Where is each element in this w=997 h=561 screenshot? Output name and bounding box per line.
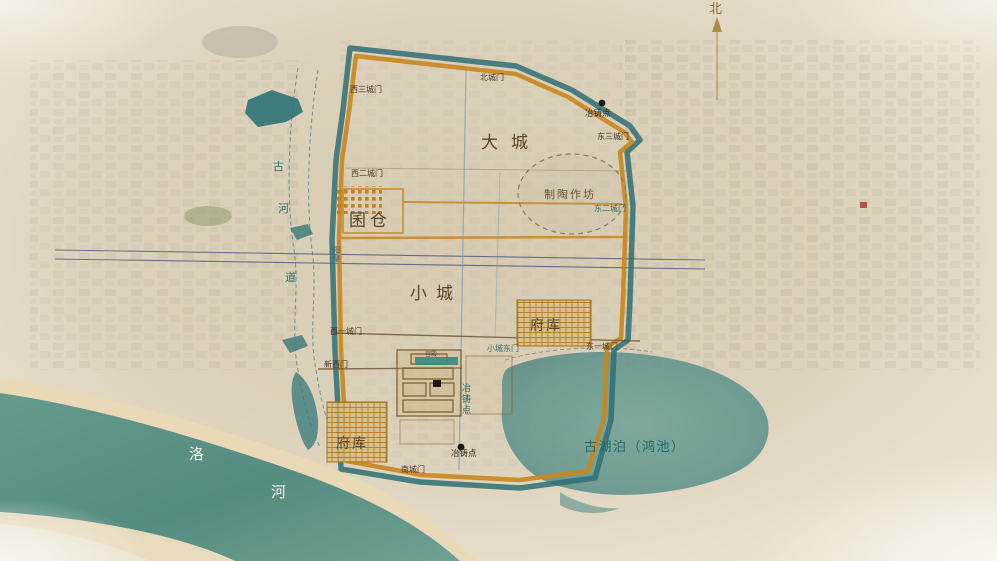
map-canvas: 北 大城 小城 囷仓 府库 府库 制陶作坊 宫殿 西三城门 北城门 东三城门 西…	[0, 0, 997, 561]
north-label: 北	[709, 2, 722, 17]
palace-hall-label: 宫殿	[425, 350, 437, 358]
east-gate-3-label: 东三城门	[597, 131, 629, 141]
west-gate-3-label: 西三城门	[350, 84, 382, 94]
west-gate-2-label: 西二城门	[351, 168, 383, 178]
palace-south-annex	[400, 420, 454, 444]
palace-hall-row3	[403, 400, 453, 412]
canal-char-1: 阳	[333, 245, 340, 254]
pottery-workshop-label: 制陶作坊	[544, 187, 596, 201]
foundry-marker-middle	[433, 380, 441, 387]
east-gate-2-label: 东二城门	[594, 203, 626, 213]
old-channel-char-1: 古	[273, 160, 284, 173]
east-gate-1-label: 东一城门	[586, 341, 618, 351]
palace-east-annex	[466, 356, 512, 414]
luo-river-char-2: 河	[271, 483, 286, 501]
lake-label: 古湖泊（鸿池）	[584, 439, 686, 455]
palace-hall-row1	[403, 368, 453, 379]
foundry-marker-north	[599, 100, 606, 107]
granary-pits-grid	[336, 186, 382, 214]
foundry-middle-char-1: 冶	[462, 382, 471, 394]
urban-texture-east	[620, 40, 980, 370]
foundry-middle-char-3: 点	[462, 405, 471, 416]
red-roof-speck	[860, 202, 867, 208]
granary-label: 囷仓	[349, 211, 391, 231]
foundry-south-label: 冶铸点	[451, 448, 477, 459]
small-city-east-gate-label: 小城东门	[487, 343, 519, 353]
west-gate-1-label: 西一城门	[330, 326, 362, 336]
canal-char-2: 渠	[333, 254, 340, 263]
small-city-mid-wall	[341, 237, 627, 238]
treasury-north-label: 府库	[530, 318, 562, 334]
luo-river-char-1: 洛	[189, 445, 204, 463]
dark-smudge	[202, 26, 278, 58]
old-channel-char-3: 道	[285, 270, 296, 284]
new-west-gate-label: 新西门	[324, 359, 348, 369]
palace-hall-platform	[415, 357, 458, 365]
foundry-north-label: 冶铸点	[585, 108, 611, 119]
xiaocheng-label: 小城	[410, 284, 462, 304]
old-channel-char-2: 河	[278, 202, 289, 215]
treasury-south	[327, 402, 387, 462]
north-gate-label: 北城门	[480, 72, 504, 82]
foundry-middle-char-2: 铸	[462, 393, 471, 405]
site-map-svg: 北 大城 小城 囷仓 府库 府库 制陶作坊 宫殿 西三城门 北城门 东三城门 西…	[0, 0, 997, 561]
dacheng-label: 大城	[481, 133, 541, 153]
south-gate-label: 南城门	[401, 464, 425, 474]
green-field-patch	[184, 206, 232, 226]
treasury-south-label: 府库	[336, 436, 368, 452]
palace-hall-row2a	[403, 383, 426, 396]
